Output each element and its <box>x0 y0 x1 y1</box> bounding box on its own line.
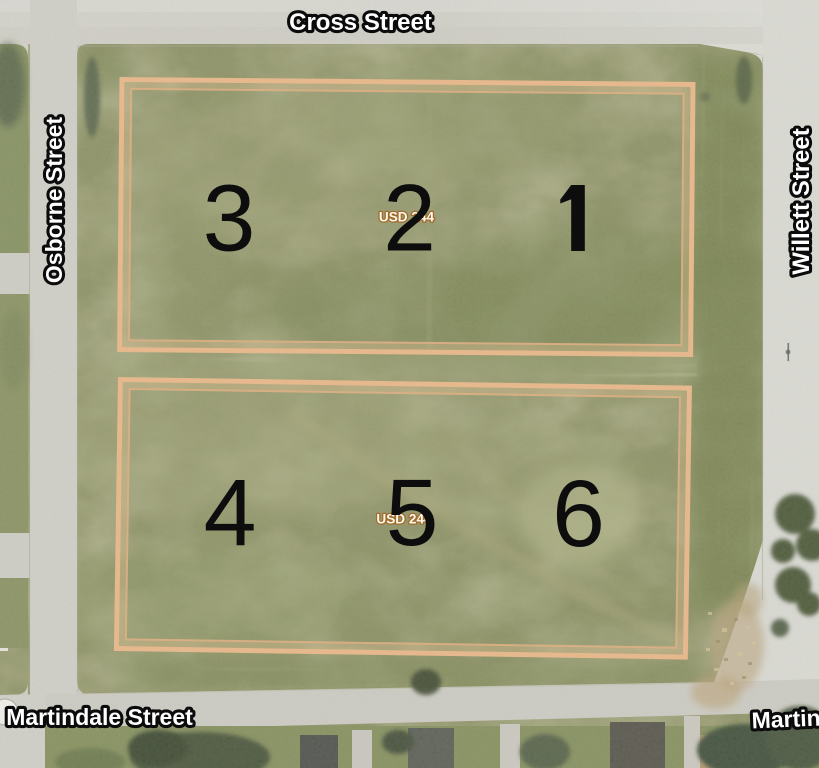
svg-text:3: 3 <box>203 166 256 272</box>
svg-text:Martindale S: Martindale S <box>751 702 819 734</box>
svg-text:Martindale Street: Martindale Street <box>6 704 193 730</box>
svg-text:Willett Street: Willett Street <box>788 128 815 274</box>
svg-text:4: 4 <box>204 461 257 567</box>
svg-text:Cross Street: Cross Street <box>289 9 432 36</box>
svg-text:2: 2 <box>383 166 436 272</box>
svg-text:5: 5 <box>386 460 439 566</box>
svg-text:6: 6 <box>552 461 605 567</box>
svg-text:Osborne Street: Osborne Street <box>41 117 67 283</box>
